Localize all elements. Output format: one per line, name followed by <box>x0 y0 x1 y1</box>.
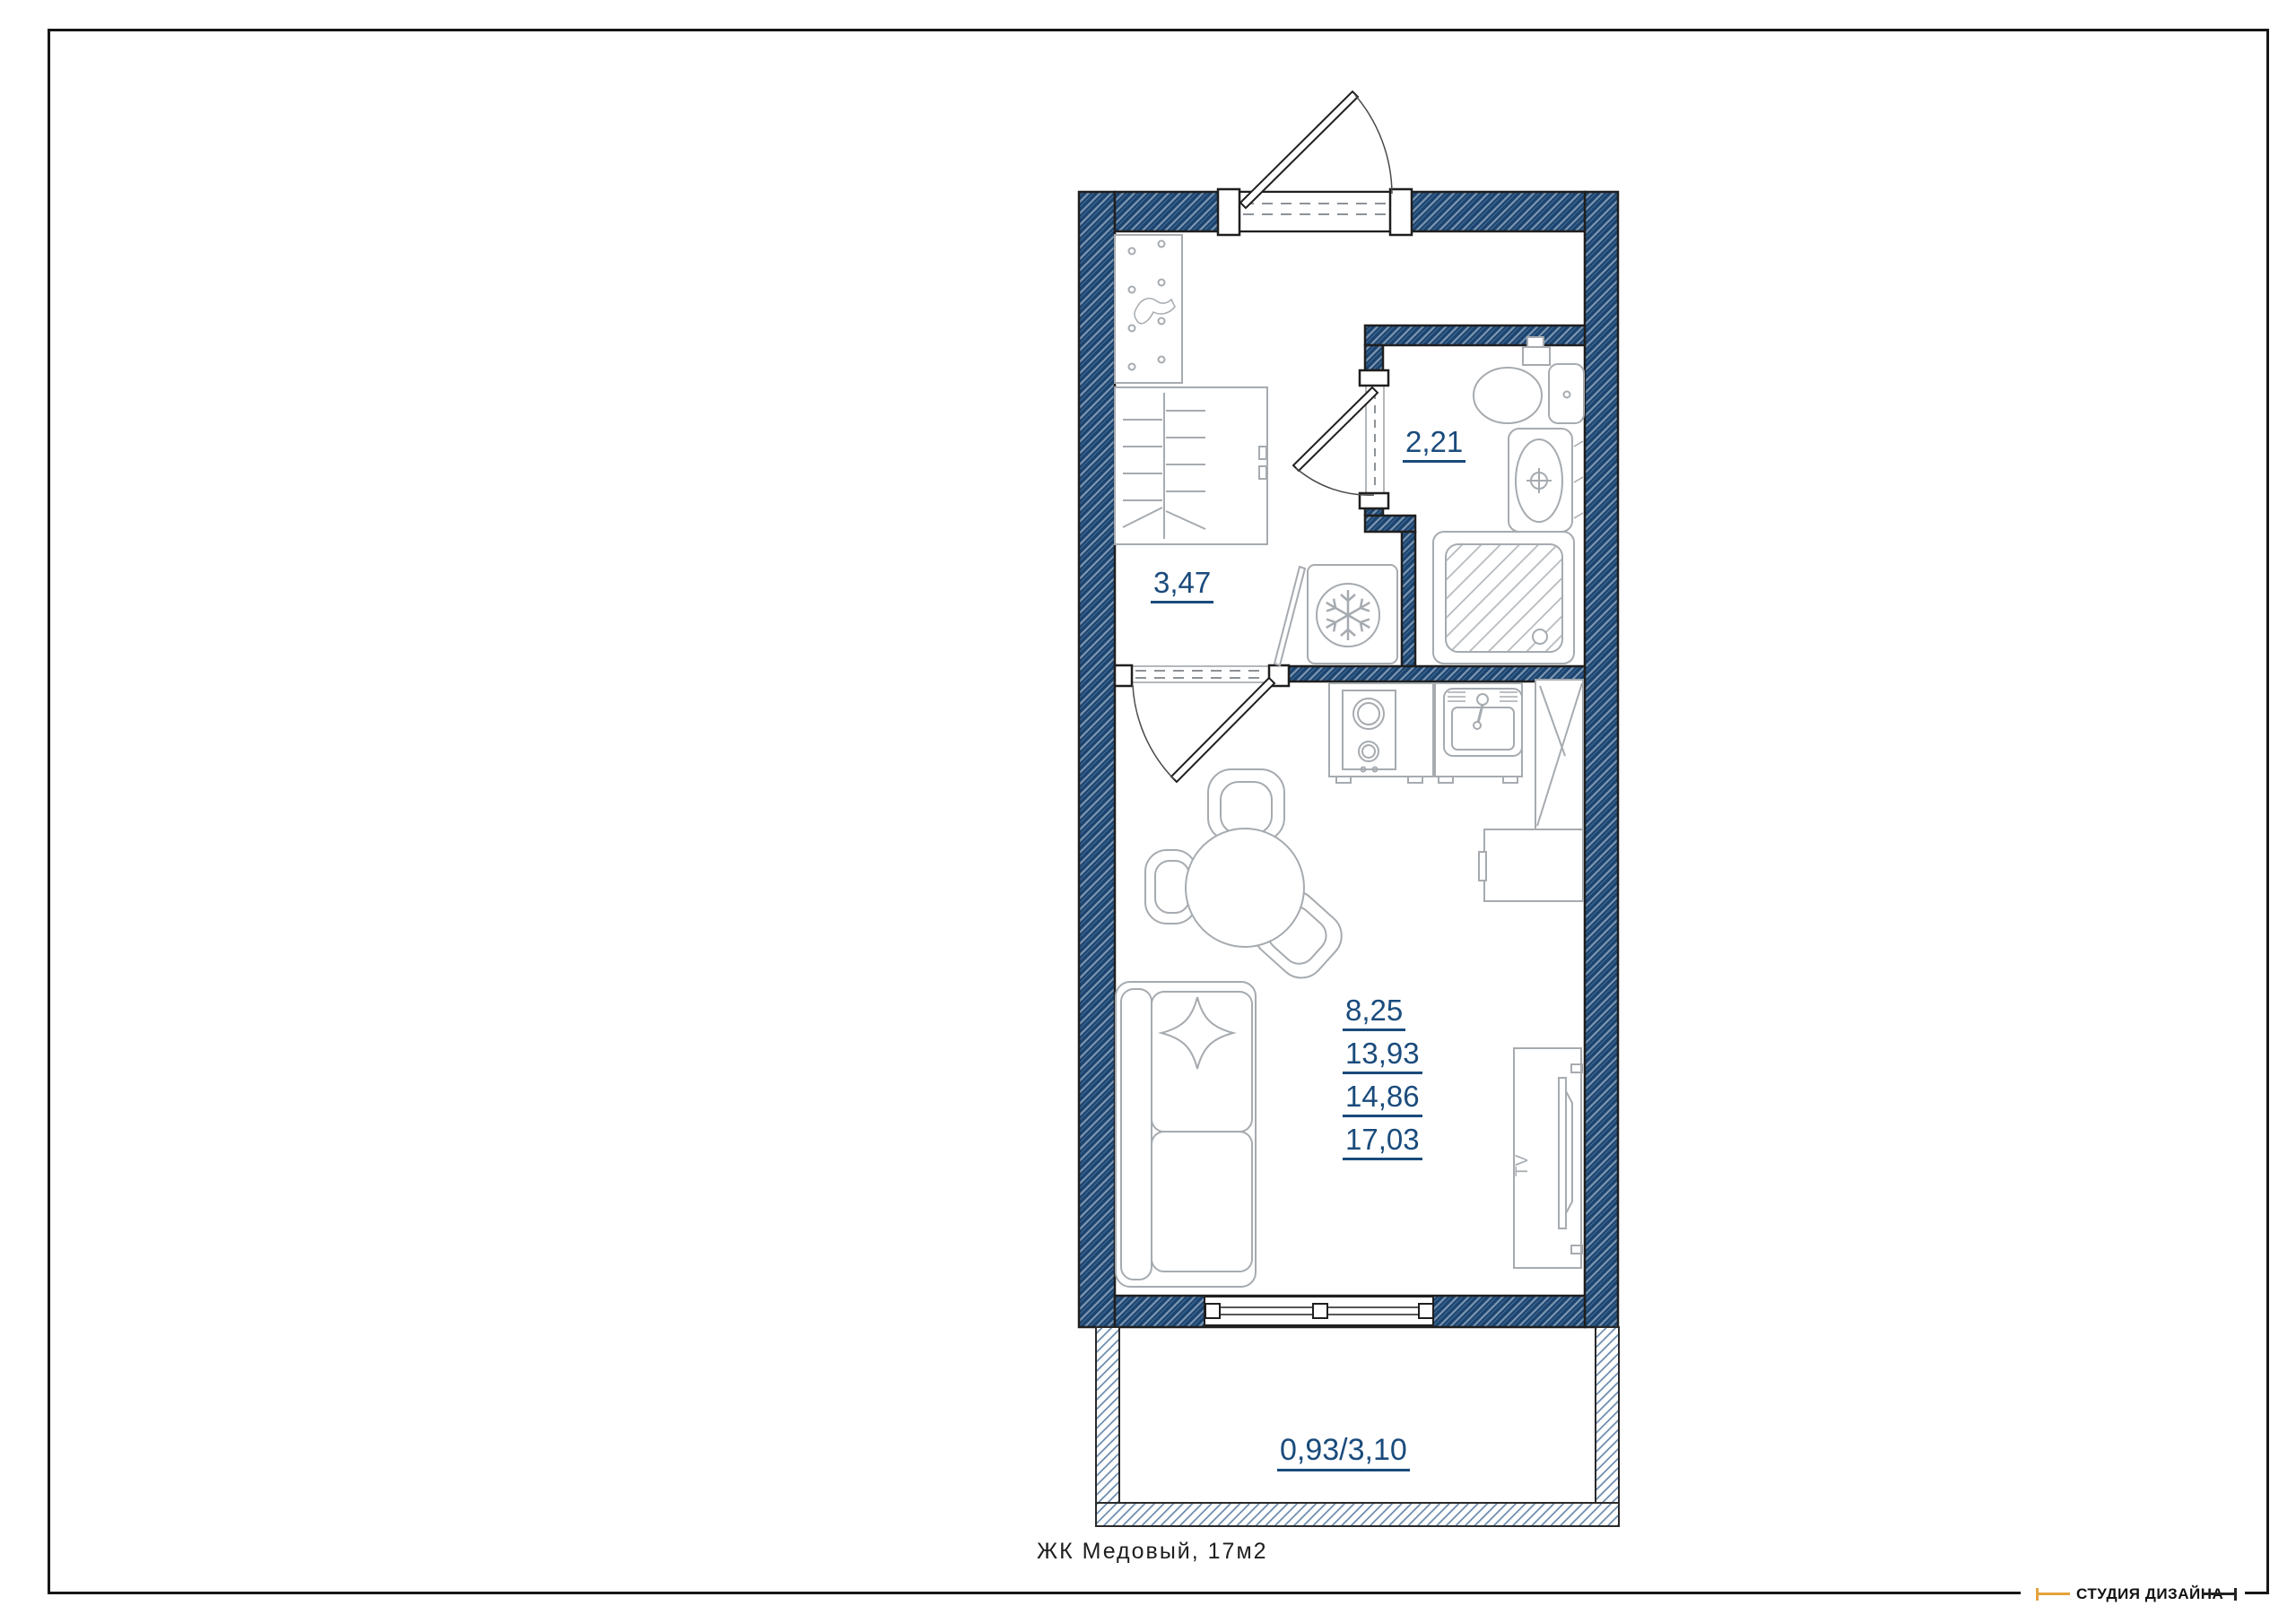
window-mullion <box>1205 1304 1220 1318</box>
balcony-area-label: 0,93/3,10 <box>1277 1435 1410 1471</box>
tall-cabinet <box>1535 680 1583 829</box>
living-area-label: 13,93 <box>1343 1038 1422 1074</box>
hall-area-label: 3,47 <box>1151 568 1213 603</box>
kitchen-sink <box>1435 683 1522 783</box>
logo-tick-right <box>2234 1588 2237 1601</box>
bathroom-area-label: 2,21 <box>1403 427 1465 463</box>
wall-bathroom-step <box>1365 516 1415 532</box>
tv-unit: TV <box>1513 1048 1582 1268</box>
entry-door <box>1240 91 1392 208</box>
living-area-label: 8,25 <box>1343 995 1405 1031</box>
plan-caption: ЖК Медовый, 17м2 <box>1037 1539 1268 1565</box>
wall-left <box>1079 192 1115 1327</box>
shoe-rack <box>1115 235 1182 383</box>
base-cabinet <box>1479 829 1583 901</box>
wall-right <box>1585 192 1618 1327</box>
wall-bathroom-vert <box>1402 532 1415 666</box>
entry-jamb-left <box>1218 189 1239 235</box>
washbasin <box>1509 429 1583 532</box>
living-area-label: 17,03 <box>1343 1124 1422 1160</box>
living-area-label: 14,86 <box>1343 1081 1422 1117</box>
entry-jamb-right <box>1390 189 1412 235</box>
wardrobe <box>1115 387 1267 544</box>
sofa <box>1116 982 1256 1287</box>
logo-line-left <box>2036 1593 2070 1595</box>
logo-line-right <box>2202 1593 2236 1595</box>
entry-opening <box>1239 192 1390 231</box>
dining-table <box>1186 829 1304 947</box>
tv-label: TV <box>1513 1154 1532 1176</box>
balcony-wall-bottom <box>1096 1503 1619 1526</box>
floor-plan-drawing: TV <box>0 0 2296 1623</box>
shower-tray <box>1433 532 1574 664</box>
page: { "page": { "caption": "ЖК Медовый, 17м2… <box>0 0 2296 1623</box>
window-mullion <box>1313 1304 1327 1318</box>
window-mullion <box>1419 1304 1433 1318</box>
balcony-wall-right <box>1596 1327 1619 1526</box>
stove <box>1329 683 1433 783</box>
wall-bathroom-top <box>1365 325 1585 345</box>
living-jamb-left <box>1115 665 1132 686</box>
living-threshold <box>1132 666 1269 682</box>
bathroom-jamb-top <box>1360 370 1388 386</box>
balcony-wall-left <box>1096 1327 1119 1526</box>
bathroom-vanity <box>1549 364 1584 423</box>
wall-bathroom-left-upper <box>1365 345 1383 370</box>
